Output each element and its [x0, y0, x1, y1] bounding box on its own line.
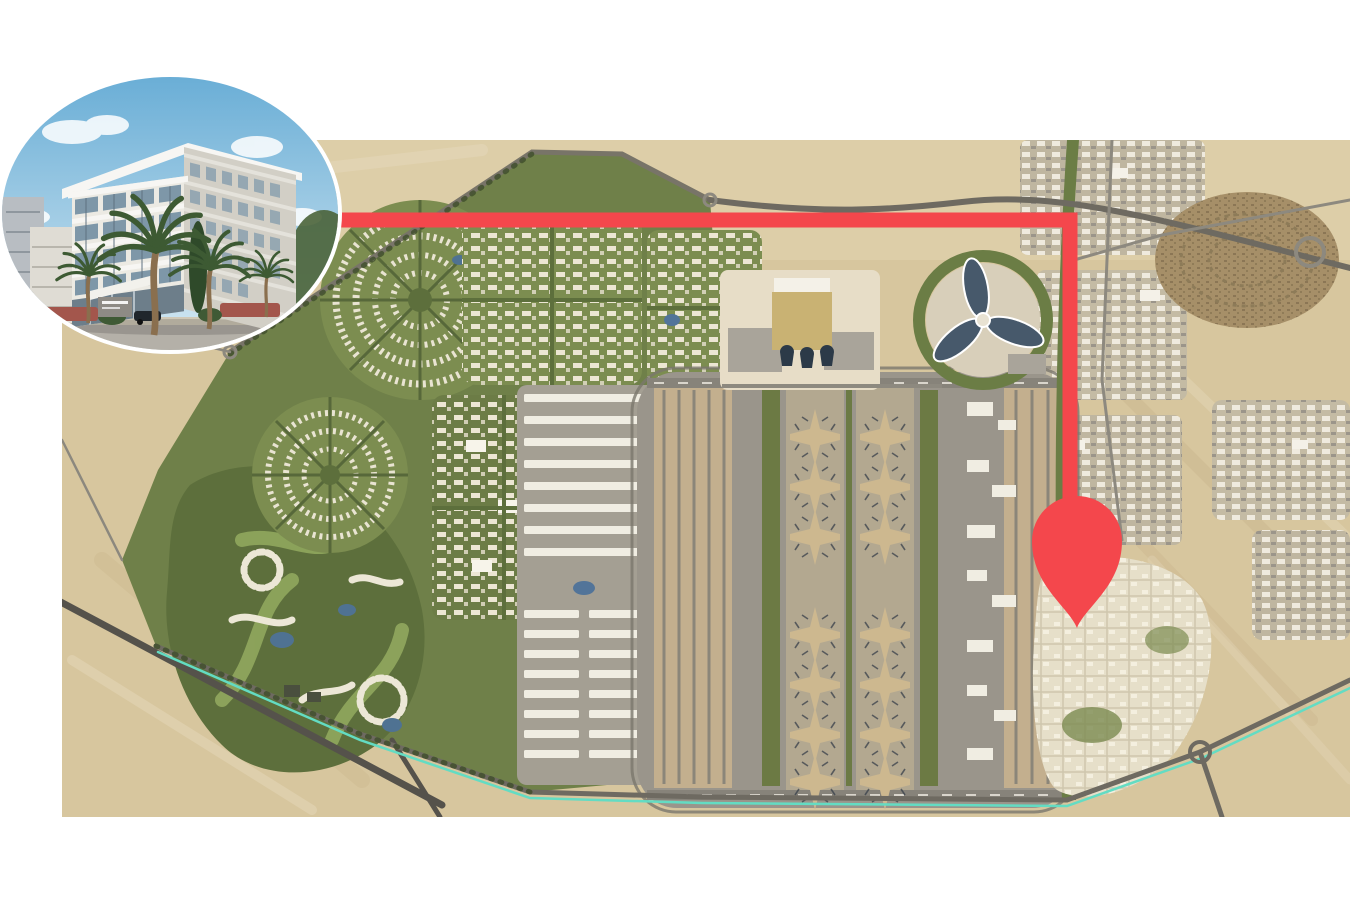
terminal-building	[772, 292, 832, 350]
radial-community-south	[252, 397, 408, 553]
page-canvas	[0, 0, 1350, 900]
building-photo	[2, 77, 338, 350]
property-photo-inset	[2, 77, 338, 350]
airport-apron	[632, 368, 1078, 812]
parked-aircraft	[780, 345, 834, 368]
expo-site	[919, 256, 1047, 384]
